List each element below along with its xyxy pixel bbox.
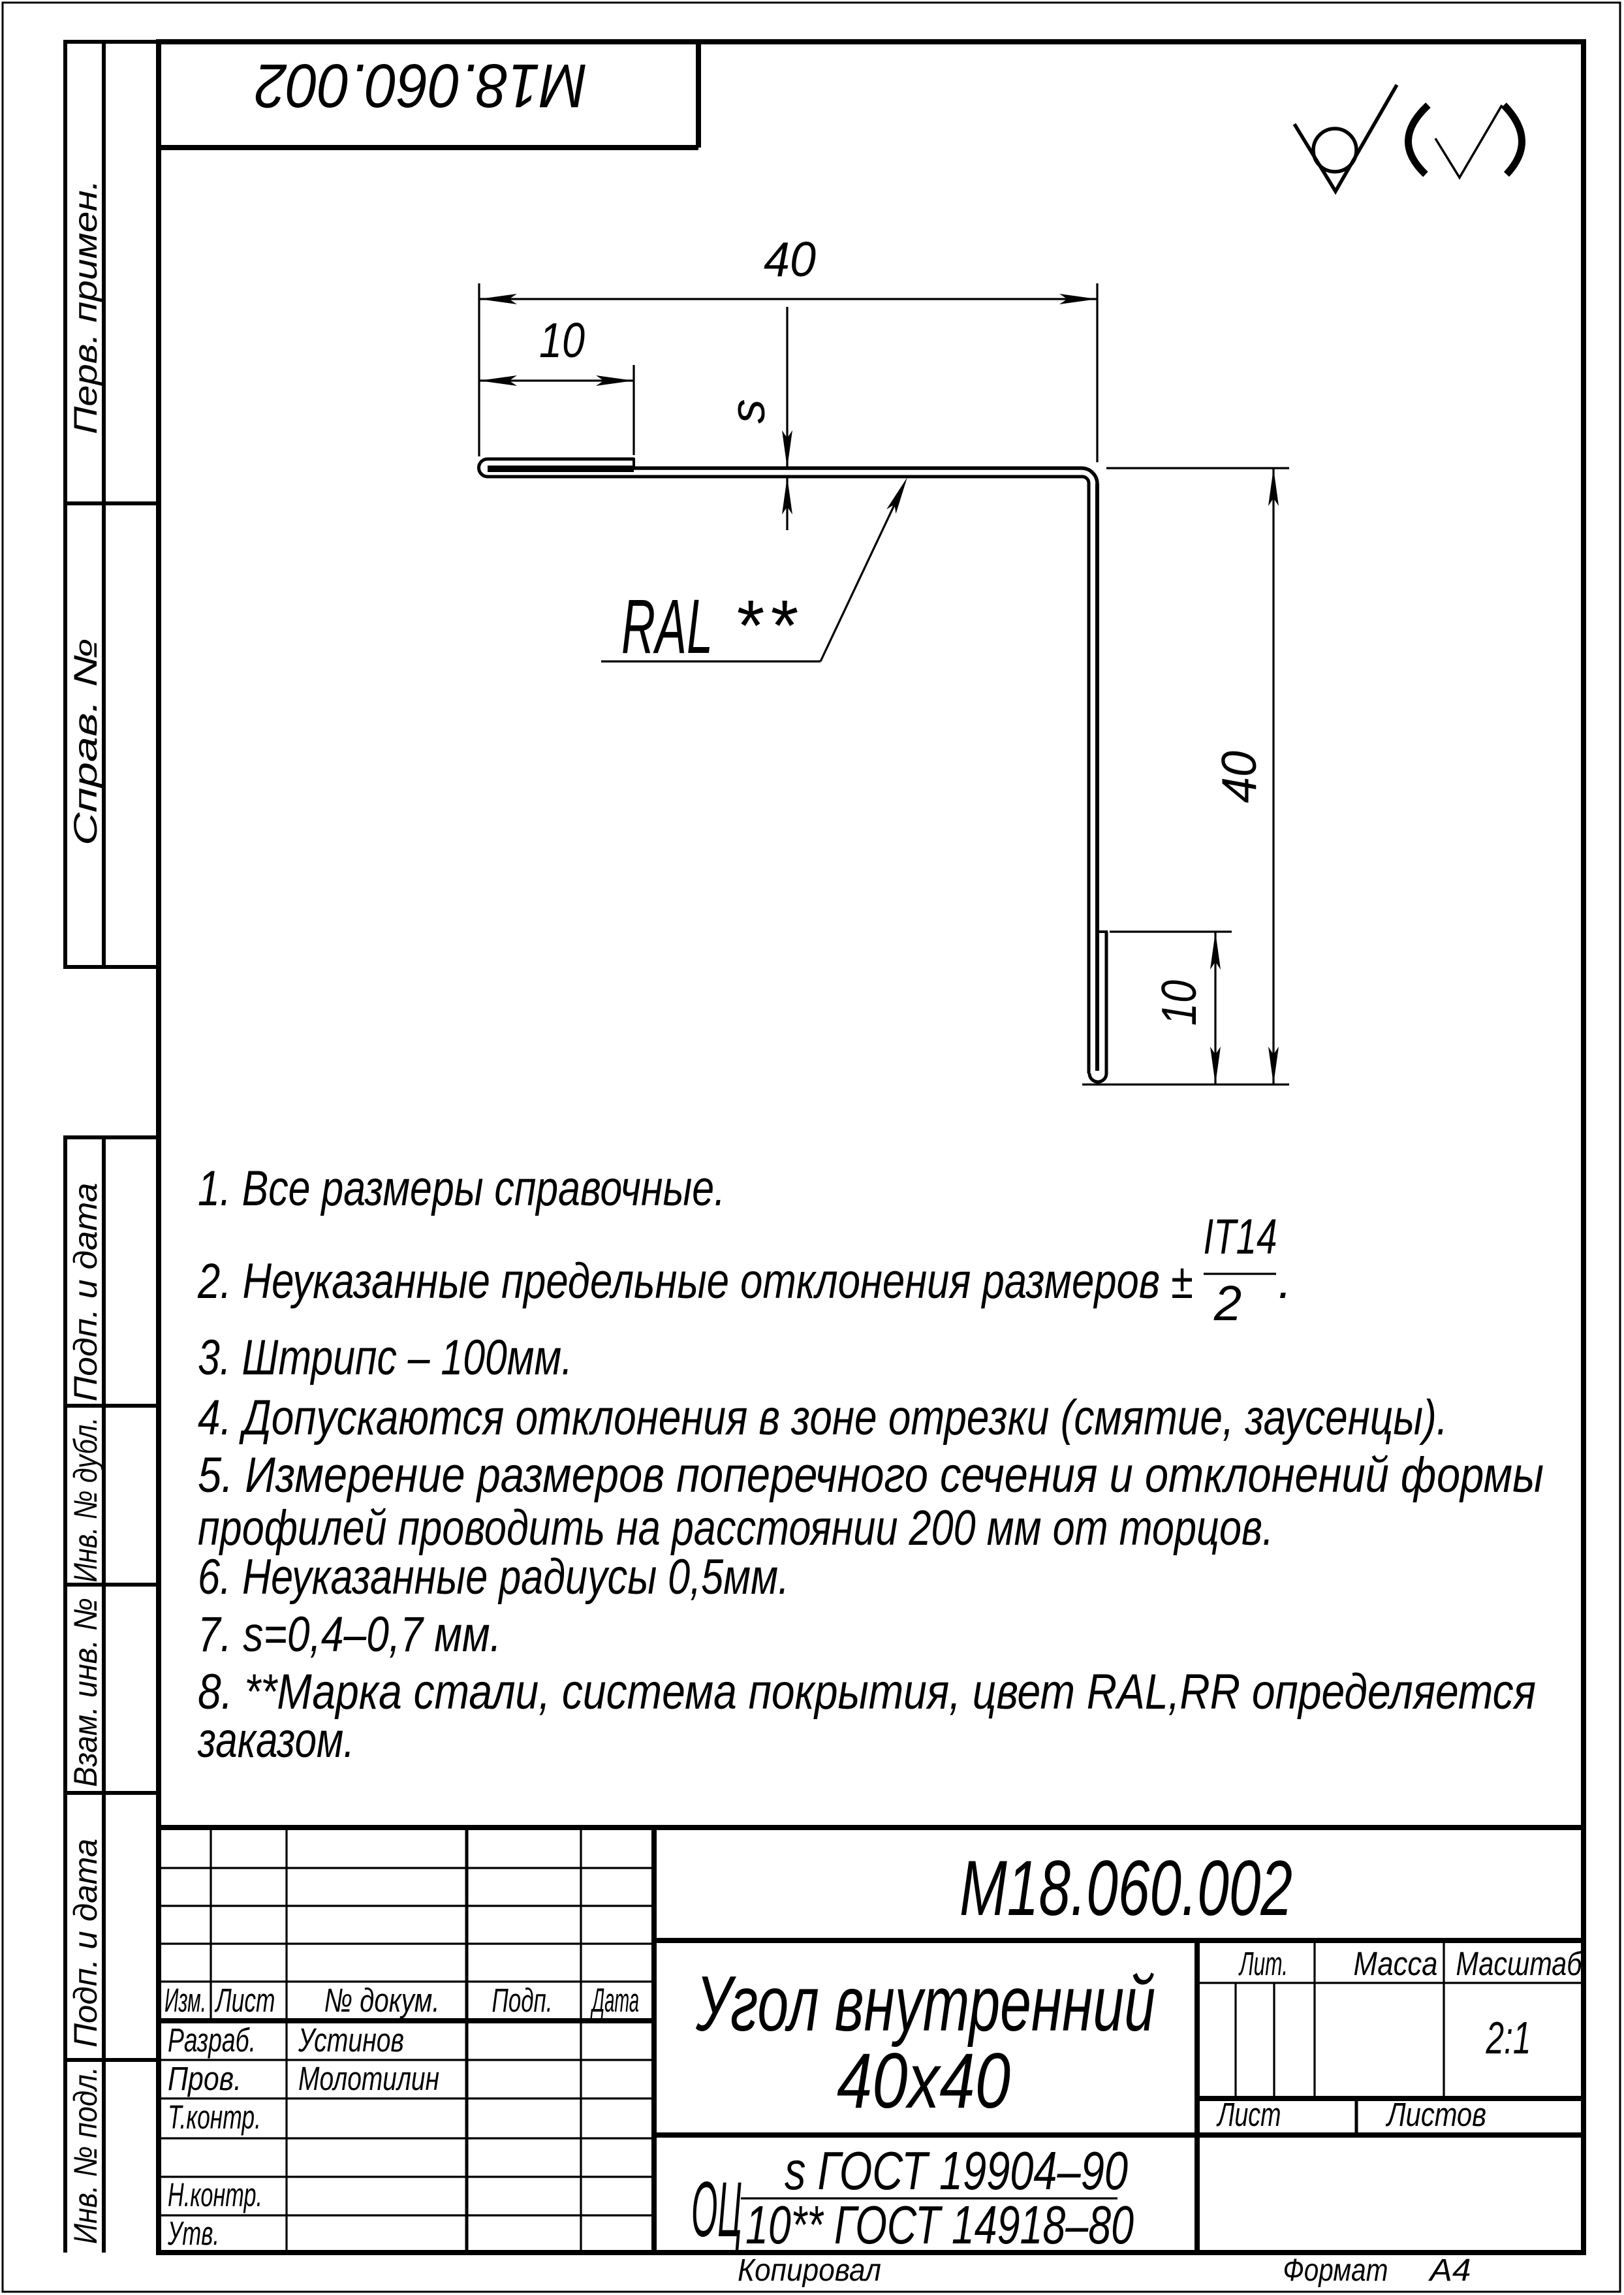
svg-text:5. Измерение размеров попер: 5. Измерение размеров поперечного сечени… <box>198 1448 1544 1503</box>
svg-text:40х40: 40х40 <box>837 2037 1010 2125</box>
svg-text:Масштаб: Масштаб <box>1456 1945 1584 1982</box>
svg-text:40: 40 <box>1211 751 1266 803</box>
svg-text:1. Все размеры справочные.: 1. Все размеры справочные. <box>198 1161 725 1216</box>
svg-text:10: 10 <box>1151 980 1206 1026</box>
svg-text:М18.060.002: М18.060.002 <box>255 51 587 120</box>
svg-text:Подп. и дата: Подп. и дата <box>67 1183 104 1402</box>
svg-text:40: 40 <box>764 232 816 287</box>
svg-text:.: . <box>1278 1254 1292 1309</box>
svg-text:Устинов: Устинов <box>298 2021 404 2059</box>
svg-text:*: * <box>734 586 764 666</box>
svg-text:10: 10 <box>539 313 585 368</box>
svg-text:профилей проводить на расстоян: профилей проводить на расстоянии 200 мм … <box>198 1500 1273 1556</box>
svg-text:3. Штрипс – 100мм.: 3. Штрипс – 100мм. <box>198 1330 572 1385</box>
svg-text:Молотилин: Молотилин <box>298 2060 439 2097</box>
svg-text:Разраб.: Разраб. <box>168 2021 256 2059</box>
svg-text:Подп. и дата: Подп. и дата <box>67 1839 104 2048</box>
svg-text:Масса: Масса <box>1354 1945 1438 1982</box>
svg-text:Т.контр.: Т.контр. <box>168 2098 261 2136</box>
svg-text:№ докум.: № докум. <box>324 1982 440 2019</box>
svg-text:Копировал: Копировал <box>738 2253 881 2288</box>
svg-text:Справ. №: Справ. № <box>67 638 104 846</box>
svg-text:Инв. № дубл.: Инв. № дубл. <box>67 1417 104 1583</box>
svg-text:2. Неуказанные предельные отк: 2. Неуказанные предельные отклонения раз… <box>197 1254 1193 1309</box>
svg-text:Листов: Листов <box>1386 2096 1486 2133</box>
svg-text:Взам. инв. №: Взам. инв. № <box>67 1598 104 1787</box>
svg-text:IT14: IT14 <box>1204 1209 1277 1265</box>
svg-text:ОЦ: ОЦ <box>691 2166 742 2253</box>
svg-text:Лит.: Лит. <box>1238 1945 1288 1982</box>
svg-text:2: 2 <box>1213 1276 1241 1331</box>
svg-text:Инв. № подл.: Инв. № подл. <box>67 2066 104 2244</box>
svg-text:М18.060.002: М18.060.002 <box>960 1844 1292 1932</box>
svg-text:Перв. примен.: Перв. примен. <box>67 180 104 434</box>
svg-text:А4: А4 <box>1428 2253 1471 2288</box>
svg-text:Дата: Дата <box>590 1982 639 2019</box>
svg-text:8. **Марка стали, система: 8. **Марка стали, система покрытия, цвет… <box>198 1664 1536 1720</box>
svg-text:4. Допускаются отклонения в з: 4. Допускаются отклонения в зоне отрезки… <box>198 1390 1448 1446</box>
svg-text:Угол внутренний: Угол внутренний <box>695 1960 1155 2048</box>
svg-text:s: s <box>720 399 775 424</box>
svg-text:Изм.: Изм. <box>164 1982 206 2019</box>
svg-text:Пров.: Пров. <box>168 2060 242 2097</box>
svg-text:Утв.: Утв. <box>167 2215 219 2252</box>
svg-text:10** ГОСТ 14918–80: 10** ГОСТ 14918–80 <box>745 2194 1134 2255</box>
svg-text:6. Неуказанные радиусы 0,5мм.: 6. Неуказанные радиусы 0,5мм. <box>198 1549 789 1605</box>
svg-text:*: * <box>768 586 798 666</box>
svg-text:Н.контр.: Н.контр. <box>168 2176 262 2213</box>
svg-text:7. s=0,4–0,7 мм.: 7. s=0,4–0,7 мм. <box>198 1607 501 1662</box>
svg-text:RAL: RAL <box>621 584 713 670</box>
svg-text:2:1: 2:1 <box>1486 2012 1531 2063</box>
svg-text:Формат: Формат <box>1283 2253 1388 2288</box>
svg-text:s ГОСТ 19904–90: s ГОСТ 19904–90 <box>785 2140 1128 2201</box>
svg-text:заказом.: заказом. <box>197 1713 354 1768</box>
svg-text:Подп.: Подп. <box>492 1982 553 2019</box>
svg-text:Лист: Лист <box>1216 2096 1281 2133</box>
svg-text:Лист: Лист <box>214 1982 275 2019</box>
